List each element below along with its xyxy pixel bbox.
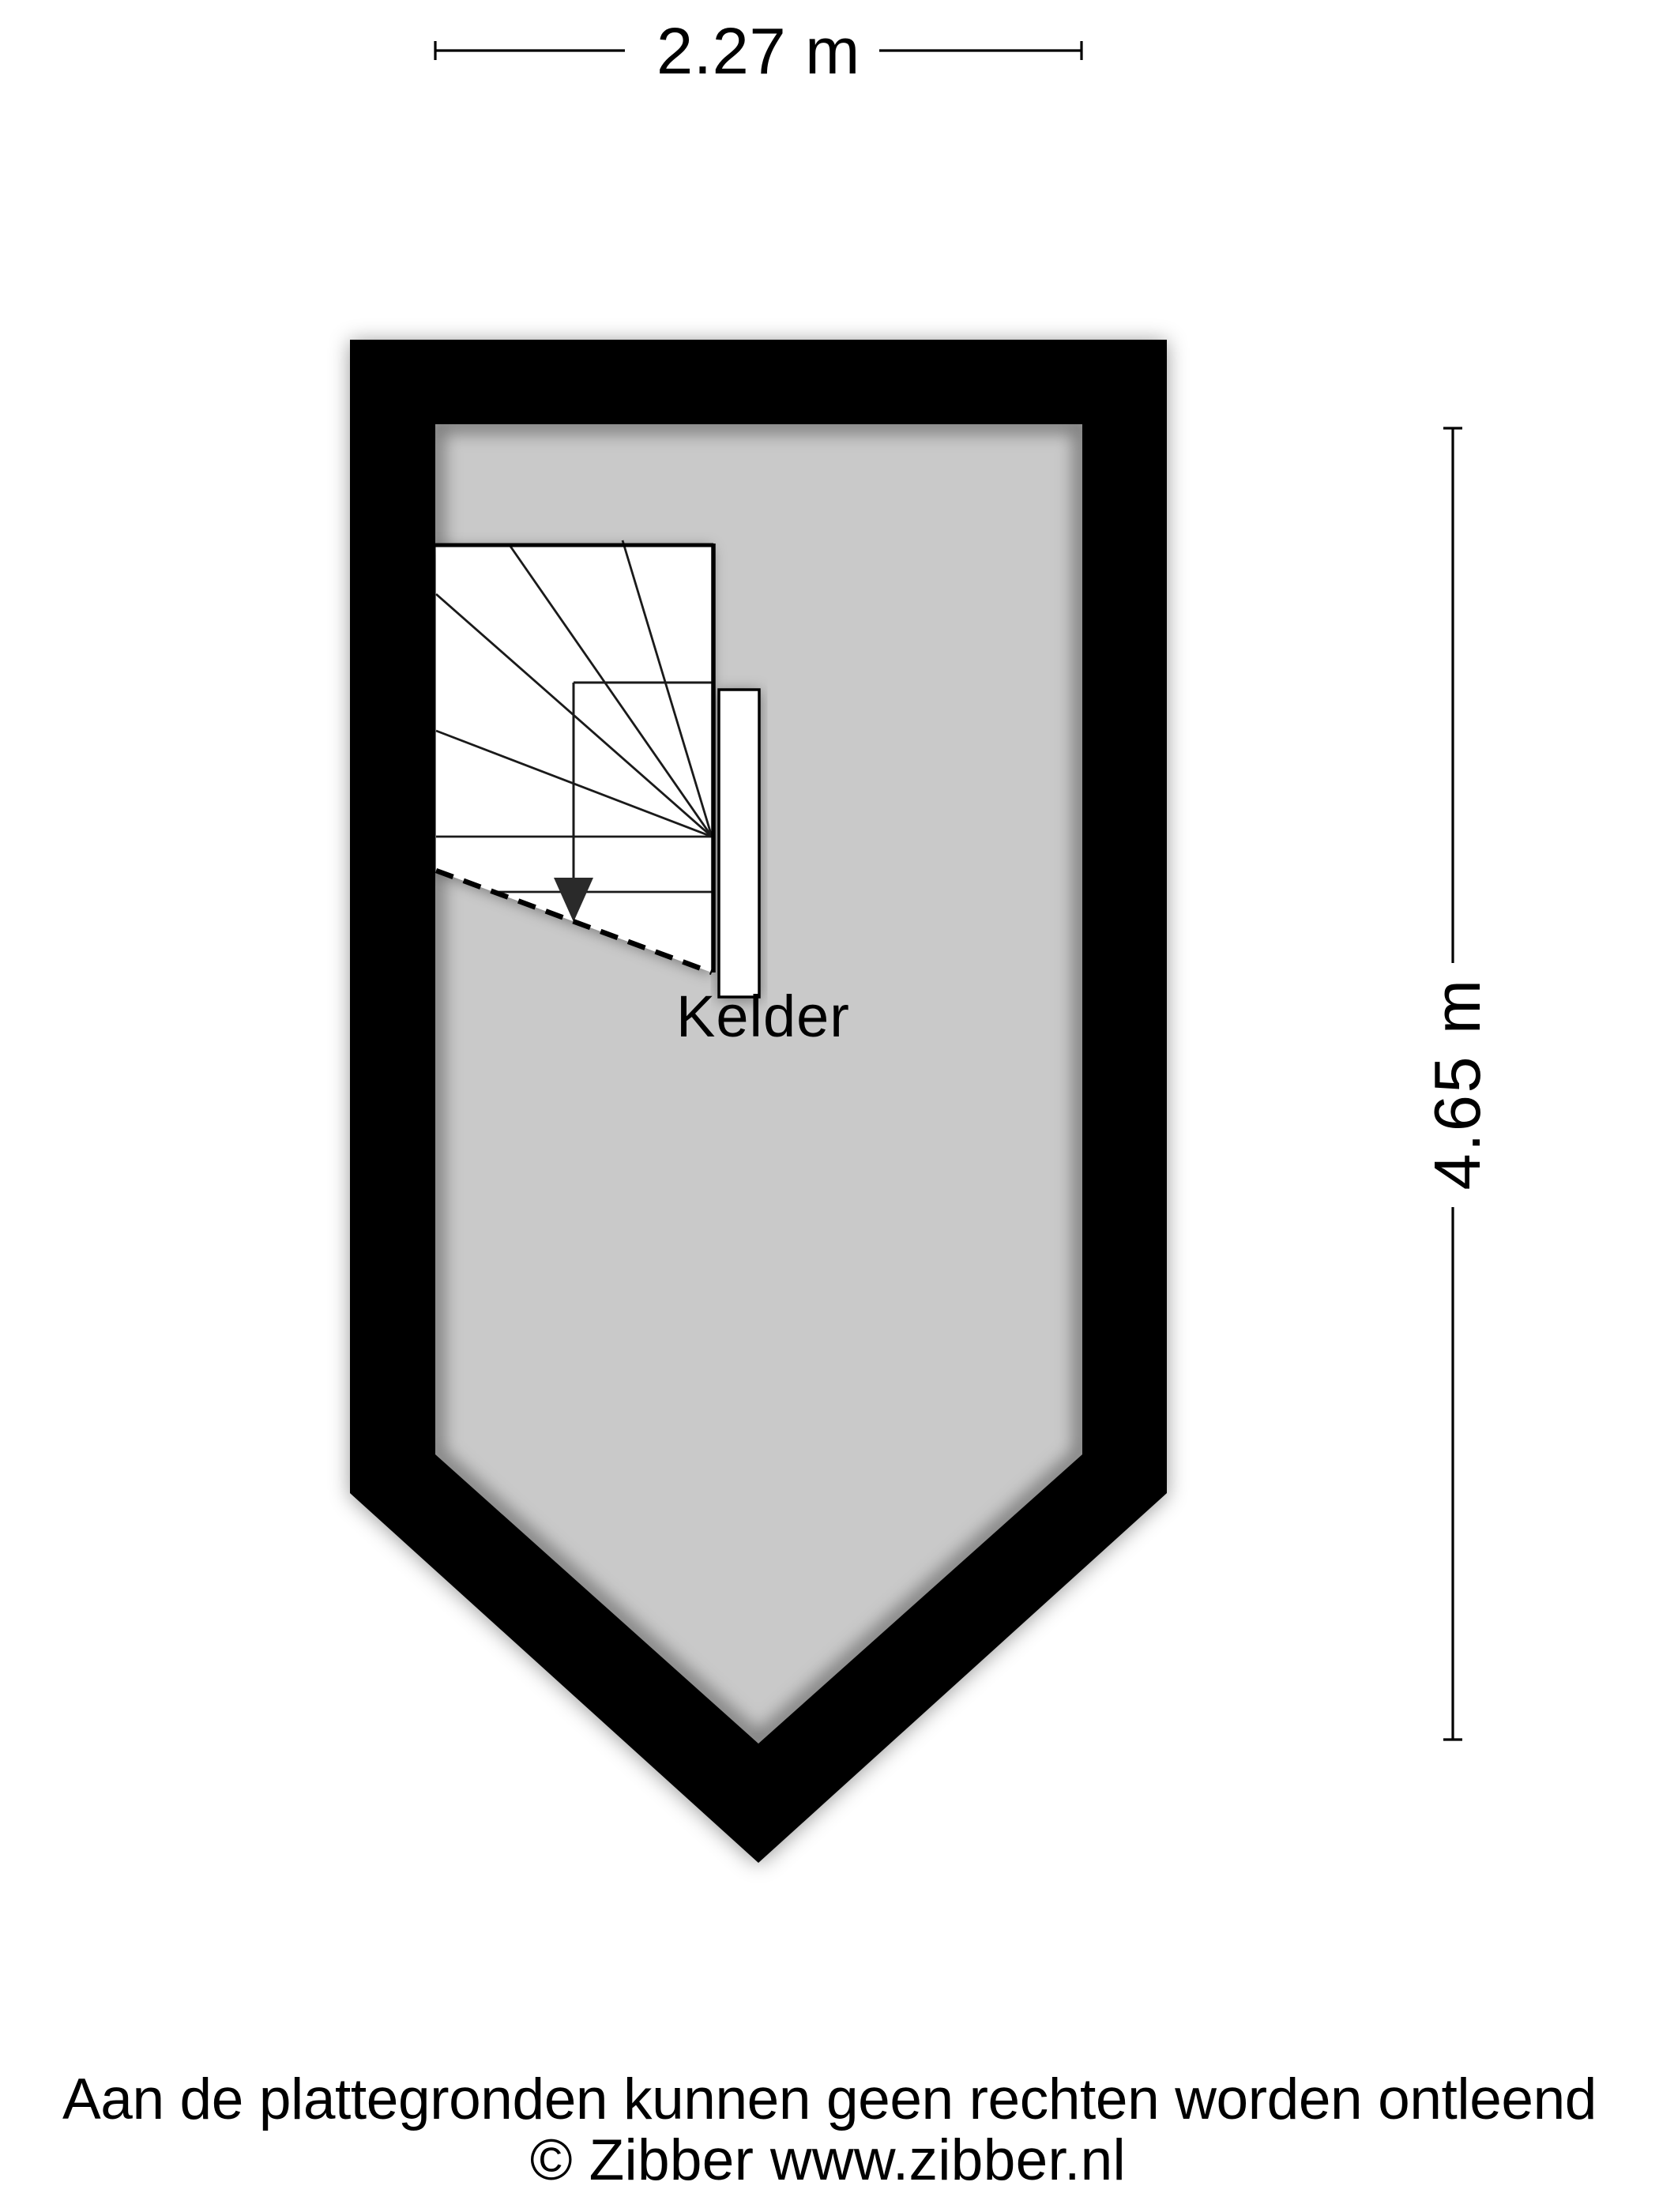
svg-text:Kelder: Kelder <box>676 984 850 1049</box>
svg-text:4.65 m: 4.65 m <box>1420 977 1494 1190</box>
svg-text:2.27 m: 2.27 m <box>656 14 860 88</box>
svg-text:© Zibber www.zibber.nl: © Zibber www.zibber.nl <box>530 2128 1126 2192</box>
svg-text:Aan de plattegronden kunnen ge: Aan de plattegronden kunnen geen rechten… <box>62 2067 1597 2131</box>
